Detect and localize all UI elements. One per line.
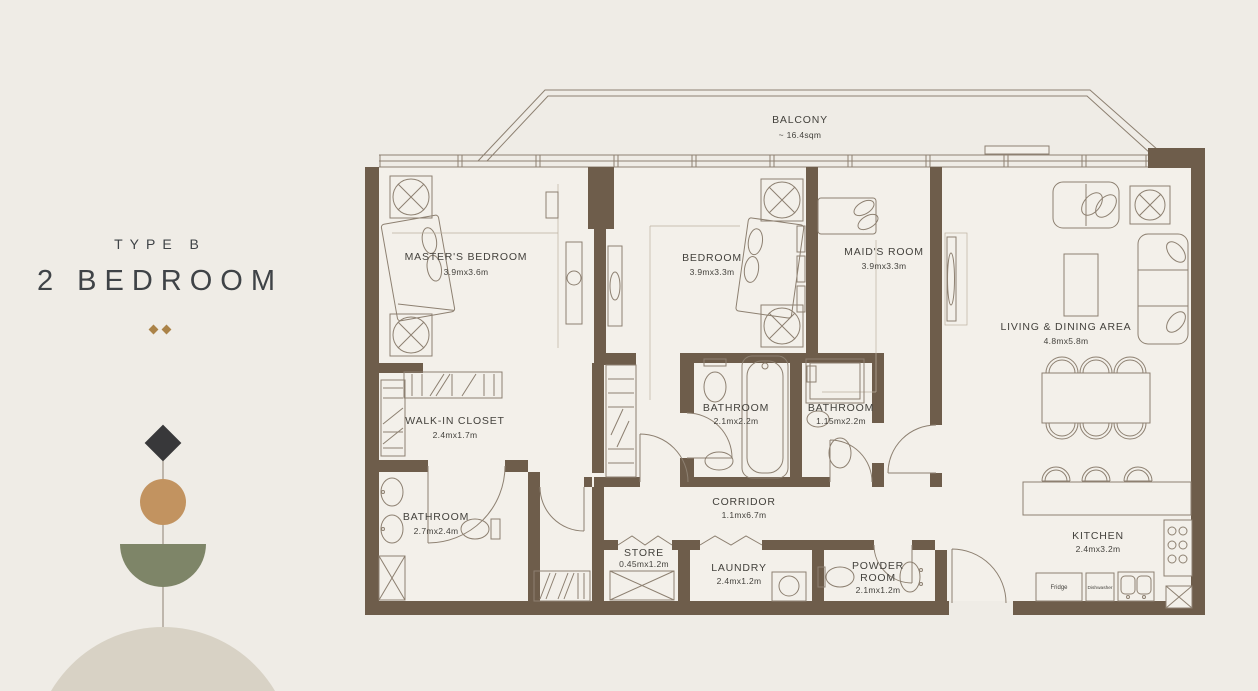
room-dims-store: 0.45mx1.2m xyxy=(619,559,669,569)
room-label-living-dining: LIVING & DINING AREA xyxy=(1001,321,1132,333)
room-dims-laundry: 2.4mx1.2m xyxy=(717,576,762,586)
fridge-label: Fridge xyxy=(1050,585,1068,591)
ornament-circle-icon xyxy=(140,479,186,525)
room-dims-walk-in-closet: 2.4mx1.7m xyxy=(433,430,478,440)
ornament-bowl-icon xyxy=(120,544,206,587)
room-label-powder-room-2: ROOM xyxy=(860,572,896,584)
stove-icon xyxy=(1164,520,1192,576)
room-dims-powder-room: 2.1mx1.2m xyxy=(856,585,901,595)
room-dims-bedroom: 3.9mx3.3m xyxy=(690,267,735,277)
room-label-master-bathroom: BATHROOM xyxy=(403,511,469,523)
ornament-dome-icon xyxy=(33,627,293,691)
ornament-column xyxy=(33,425,293,691)
apartment-floor xyxy=(379,167,1191,601)
room-dims-bathroom-2: 1.15mx2.2m xyxy=(816,416,866,426)
room-label-balcony: BALCONY xyxy=(772,114,828,126)
room-dims-living-dining: 4.8mx5.8m xyxy=(1044,336,1089,346)
room-label-walk-in-closet: WALK-IN CLOSET xyxy=(405,415,505,427)
kitchen-counter xyxy=(1023,482,1191,515)
window-wall xyxy=(379,155,1148,167)
brochure-page: TYPE B 2 BEDROOM xyxy=(0,0,1258,691)
room-label-bathroom-2: BATHROOM xyxy=(808,402,874,414)
room-label-store: STORE xyxy=(624,547,664,559)
room-dims-master-bathroom: 2.7mx2.4m xyxy=(414,526,459,536)
room-dims-maids-room: 3.9mx3.3m xyxy=(862,261,907,271)
balcony-ledge xyxy=(985,146,1049,154)
dishwasher-icon: Dishwasher xyxy=(1086,573,1114,601)
room-dims-bathroom-1: 2.1mx2.2m xyxy=(714,416,759,426)
room-dims-kitchen: 2.4mx3.2m xyxy=(1076,544,1121,554)
room-label-masters-bedroom: MASTER'S BEDROOM xyxy=(405,251,528,263)
floor-plan: Fridge Dishwasher xyxy=(0,0,1258,691)
room-dims-masters-bedroom: 3.9mx3.6m xyxy=(444,267,489,277)
room-label-bedroom: BEDROOM xyxy=(682,252,742,264)
room-label-laundry: LAUNDRY xyxy=(711,562,767,574)
room-dims-balcony: ~ 16.4sqm xyxy=(779,130,822,140)
floor-drain-icon xyxy=(1166,586,1192,608)
room-label-maids-room: MAID'S ROOM xyxy=(844,246,924,258)
room-label-kitchen: KITCHEN xyxy=(1072,530,1124,542)
ornament-diamond-icon xyxy=(145,425,182,462)
room-label-bathroom-1: BATHROOM xyxy=(703,402,769,414)
room-label-corridor: CORRIDOR xyxy=(712,496,776,508)
room-dims-corridor: 1.1mx6.7m xyxy=(722,510,767,520)
room-label-powder-room: POWDER xyxy=(852,560,904,572)
dishwasher-label: Dishwasher xyxy=(1087,585,1112,591)
fridge-icon: Fridge xyxy=(1036,573,1082,601)
